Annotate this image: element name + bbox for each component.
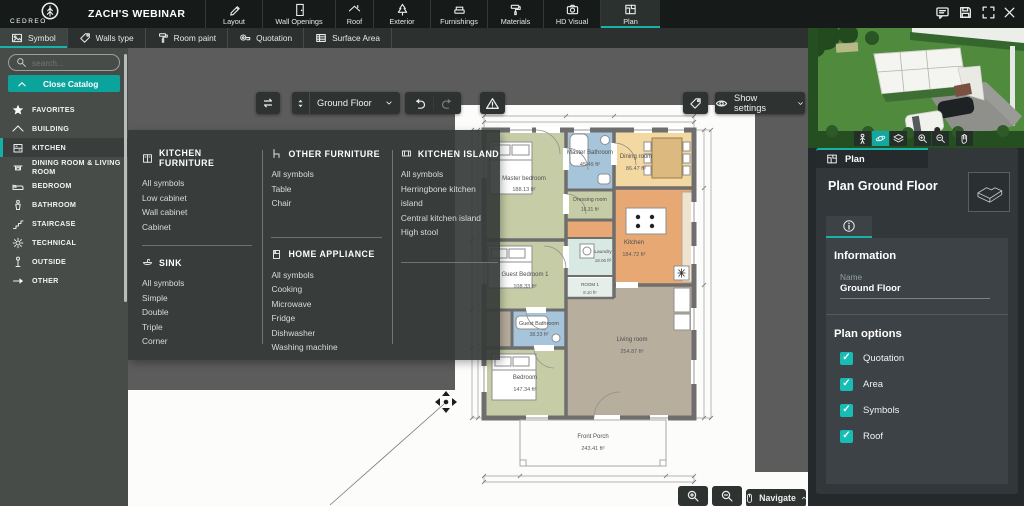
tab-walls-type[interactable]: Walls type <box>68 28 146 48</box>
preview-3d-viewport[interactable] <box>808 28 1024 148</box>
name-label: Name <box>840 272 862 282</box>
catalog-link[interactable]: Triple <box>142 320 254 335</box>
floors-view-button[interactable] <box>890 131 907 146</box>
other-furniture-header[interactable]: OTHER FURNITURE <box>271 148 383 159</box>
show-settings-dropdown[interactable]: Show settings <box>715 92 805 114</box>
tab-roof[interactable]: Roof <box>335 0 373 28</box>
checkbox-checked-icon[interactable] <box>840 430 853 443</box>
orbit-view-button[interactable] <box>872 131 889 146</box>
fullscreen-icon[interactable] <box>981 5 997 21</box>
checkbox-checked-icon[interactable] <box>840 404 853 417</box>
layers-icon <box>893 133 904 144</box>
sync-icon <box>261 96 275 110</box>
sidebar-item-bathroom[interactable]: BATHROOM <box>0 195 128 214</box>
catalog-link[interactable]: Wall cabinet <box>142 205 254 220</box>
catalog-link[interactable]: Double <box>142 305 254 320</box>
zoom-in-icon <box>917 133 928 144</box>
undo-redo-group <box>405 92 461 114</box>
svg-text:Guest Bathroom: Guest Bathroom <box>519 321 559 327</box>
sidebar-item-outside[interactable]: OUTSIDE <box>0 252 128 271</box>
bed-icon <box>12 180 24 192</box>
divider <box>401 262 498 263</box>
option-quotation[interactable]: Quotation <box>840 352 904 365</box>
svg-text:Laundry: Laundry <box>594 249 612 255</box>
preview-zoom-in-button[interactable] <box>914 131 931 146</box>
plan-options-title: Plan options <box>834 328 902 340</box>
chair-icon <box>271 148 282 159</box>
camera-icon <box>566 3 579 16</box>
kitchen-island-header[interactable]: KITCHEN ISLAND <box>401 148 500 159</box>
zoom-in-button[interactable] <box>678 486 708 506</box>
brand-wordmark: CEDREO <box>10 18 47 25</box>
room-1 <box>566 278 614 298</box>
sync-floors-button[interactable] <box>256 92 280 114</box>
labels-button[interactable] <box>683 92 708 114</box>
navigate-dropdown[interactable]: Navigate <box>746 489 806 506</box>
tag-icon <box>79 32 91 44</box>
sidebar-item-staircase[interactable]: STAIRCASE <box>0 214 128 233</box>
appliance-icon <box>271 249 282 260</box>
search-box[interactable] <box>8 54 120 71</box>
floor-selector[interactable]: Ground Floor <box>292 92 400 114</box>
tab-hd-visual[interactable]: HD Visual <box>543 0 600 28</box>
right-panel: Plan Plan Ground Floor Information Name … <box>808 28 1024 506</box>
catalog-link[interactable]: All symbols <box>271 167 383 182</box>
svg-text:Kitchen: Kitchen <box>624 240 644 246</box>
table-icon <box>315 32 327 44</box>
tab-surface-area[interactable]: Surface Area <box>304 28 392 48</box>
svg-text:254.87 ft²: 254.87 ft² <box>620 349 643 355</box>
sidebar-item-other[interactable]: OTHER <box>0 271 128 290</box>
chevron-up-icon <box>17 80 27 88</box>
sidebar-item-bedroom[interactable]: BEDROOM <box>0 176 128 195</box>
sofa-icon <box>453 3 466 16</box>
catalog-link[interactable]: All symbols <box>142 276 254 291</box>
close-catalog-button[interactable]: Close Catalog <box>8 75 120 92</box>
checkbox-checked-icon[interactable] <box>840 352 853 365</box>
flyout-column-2: OTHER FURNITURE All symbols Table Chair … <box>271 148 383 360</box>
floor-name-field[interactable]: Ground Floor <box>840 283 990 299</box>
svg-text:45.49 ft²: 45.49 ft² <box>580 162 600 168</box>
island-icon <box>401 148 412 159</box>
pan-button[interactable] <box>956 131 973 146</box>
panel-heading: Plan Ground Floor <box>828 179 938 193</box>
close-icon[interactable] <box>1002 5 1018 21</box>
cedreo-logo[interactable]: CEDREO <box>4 1 76 27</box>
zoom-out-icon <box>935 133 946 144</box>
plan-panel-tab[interactable]: Plan <box>816 148 928 168</box>
information-title: Information <box>834 250 896 262</box>
floor-stepper-icon[interactable] <box>292 92 310 114</box>
zoom-out-icon <box>720 489 734 503</box>
render-3d-scene <box>808 28 1024 148</box>
svg-text:243.41 ft²: 243.41 ft² <box>581 446 604 452</box>
catalog-link[interactable]: Cabinet <box>142 220 254 235</box>
hand-icon <box>959 133 970 144</box>
sink-header[interactable]: SINK <box>142 257 254 268</box>
comment-icon[interactable] <box>935 5 951 21</box>
tree-icon <box>396 3 409 16</box>
sidebar-item-technical[interactable]: TECHNICAL <box>0 233 128 252</box>
floor-value: Ground Floor <box>310 98 384 108</box>
pencil-icon <box>228 3 241 16</box>
catalog-link[interactable]: Chair <box>271 196 383 211</box>
info-tab[interactable] <box>826 216 872 238</box>
catalog-link[interactable]: High stool <box>401 225 500 240</box>
image-icon <box>11 32 23 44</box>
kitchen-catalog-flyout: KITCHEN FURNITURE All symbols Low cabine… <box>128 130 500 360</box>
search-icon <box>16 57 27 68</box>
info-icon <box>842 219 856 233</box>
eye-icon <box>715 97 728 110</box>
svg-text:Bedroom: Bedroom <box>513 375 537 381</box>
redo-icon[interactable] <box>433 96 460 110</box>
roller-icon <box>157 32 169 44</box>
svg-text:188.13 ft²: 188.13 ft² <box>512 187 535 193</box>
catalog-link[interactable]: Dishwasher <box>271 326 383 341</box>
svg-text:Master bedroom: Master bedroom <box>502 176 546 182</box>
tool-tabs-bar: Symbol Walls type Room paint Quotation S… <box>0 28 808 48</box>
zoom-in-icon <box>686 489 700 503</box>
cedreo-app: { "app": { "brand": "CEDREO", "project_t… <box>0 0 1024 506</box>
tab-symbol[interactable]: Symbol <box>0 28 68 48</box>
kitchen-cabinet-icon <box>12 142 24 154</box>
catalog-link[interactable]: Central kitchen island <box>401 211 500 226</box>
svg-text:18.06 ft²: 18.06 ft² <box>595 258 612 263</box>
building-icon <box>12 123 24 135</box>
kitchen-furniture-header[interactable]: KITCHEN FURNITURE <box>142 148 254 168</box>
roof-icon <box>348 3 361 16</box>
divider <box>392 150 393 344</box>
catalog-sidebar: Close Catalog FAVORITES BUILDING KITCHEN… <box>0 48 128 506</box>
top-bar: CEDREO ZACH'S WEBINAR Layout Wall Openin… <box>0 0 1024 28</box>
blueprint-icon <box>826 153 838 165</box>
plan-info-section: Information Name Ground Floor Plan optio… <box>826 238 1008 484</box>
arrow-icon <box>12 275 24 287</box>
plan-properties-card: Plan Plan Ground Floor Information Name … <box>816 148 1018 494</box>
preview-zoom-out-button[interactable] <box>932 131 949 146</box>
catalog-link[interactable]: Table <box>271 182 383 197</box>
label-tag-icon <box>689 97 702 110</box>
chevron-down-icon <box>384 98 400 108</box>
catalog-link[interactable]: Cooking <box>271 282 383 297</box>
flyout-column-1: KITCHEN FURNITURE All symbols Low cabine… <box>142 148 254 360</box>
measure-icon <box>239 32 251 44</box>
flyout-column-3: KITCHEN ISLAND All symbols Herringbone k… <box>401 148 500 360</box>
svg-text:Front Porch: Front Porch <box>577 434 608 440</box>
stairs-icon <box>12 218 24 230</box>
sidebar-item-kitchen[interactable]: KITCHEN <box>0 138 128 157</box>
blueprint-icon <box>624 3 637 16</box>
svg-text:86.47 ft²: 86.47 ft² <box>626 166 646 172</box>
catalog-link[interactable]: Fridge <box>271 311 383 326</box>
walkthrough-button[interactable] <box>854 131 871 146</box>
sidebar-item-dining-living[interactable]: DINING ROOM & LIVING ROOM <box>0 157 128 176</box>
star-icon <box>12 104 24 116</box>
catalog-link[interactable]: Herringbone kitchen island <box>401 182 500 211</box>
option-roof[interactable]: Roof <box>840 430 883 443</box>
divider <box>262 150 263 344</box>
chevron-down-icon <box>796 99 805 108</box>
chevron-up-icon <box>800 494 808 502</box>
divider <box>826 314 1008 315</box>
svg-text:147.34 ft²: 147.34 ft² <box>513 387 536 393</box>
lamp-icon <box>12 256 24 268</box>
room-dressing <box>566 190 614 220</box>
option-area[interactable]: Area <box>840 378 883 391</box>
tab-layout[interactable]: Layout <box>205 0 262 28</box>
warning-button[interactable] <box>480 92 505 114</box>
catalog-link[interactable]: Simple <box>142 291 254 306</box>
catalog-link[interactable]: All symbols <box>271 268 383 283</box>
catalog-link[interactable]: Washing machine <box>271 340 383 355</box>
svg-text:184.72 ft²: 184.72 ft² <box>622 252 645 258</box>
catalog-link[interactable]: Microwave <box>271 297 383 312</box>
tab-furnishings[interactable]: Furnishings <box>430 0 487 28</box>
option-symbols[interactable]: Symbols <box>840 404 899 417</box>
cabinet-icon <box>142 153 153 164</box>
tab-room-paint[interactable]: Room paint <box>146 28 228 48</box>
search-input[interactable] <box>32 58 114 68</box>
project-title: ZACH'S WEBINAR <box>88 8 185 20</box>
mouse-icon <box>744 493 755 504</box>
sidebar-scrollbar[interactable] <box>124 54 127 302</box>
catalog-link[interactable]: Low cabinet <box>142 191 254 206</box>
svg-text:Dressing room: Dressing room <box>573 197 607 203</box>
floor-3d-icon[interactable] <box>968 172 1010 212</box>
tab-exterior[interactable]: Exterior <box>373 0 430 28</box>
divider <box>271 237 381 238</box>
svg-text:Guest Bedroom 1: Guest Bedroom 1 <box>501 272 549 278</box>
tab-materials[interactable]: Materials <box>487 0 543 28</box>
gear-icon <box>12 237 24 249</box>
preview-toolbar <box>854 131 973 146</box>
plan-canvas[interactable]: Master bedroom 188.13 ft² Master Bathroo… <box>128 48 808 506</box>
warning-icon <box>485 96 500 111</box>
svg-text:Living room: Living room <box>616 337 647 343</box>
catalog-link[interactable]: All symbols <box>142 176 254 191</box>
person-icon <box>857 133 868 144</box>
paint-roller-icon <box>509 3 522 16</box>
tab-quotation[interactable]: Quotation <box>228 28 304 48</box>
svg-text:8.10 ft²: 8.10 ft² <box>583 290 597 295</box>
divider <box>142 245 252 246</box>
tab-wall-openings[interactable]: Wall Openings <box>262 0 335 28</box>
svg-text:38.33 ft²: 38.33 ft² <box>529 332 548 338</box>
orbit-icon <box>875 133 886 144</box>
sink-icon <box>142 257 153 268</box>
sidebar-item-favorites[interactable]: FAVORITES <box>0 100 128 119</box>
zoom-out-button[interactable] <box>712 486 742 506</box>
catalog-link[interactable]: All symbols <box>401 167 500 182</box>
sidebar-item-building[interactable]: BUILDING <box>0 119 128 138</box>
save-icon[interactable] <box>958 5 974 21</box>
dining-table-icon <box>12 161 24 173</box>
undo-icon[interactable] <box>406 96 433 110</box>
checkbox-checked-icon[interactable] <box>840 378 853 391</box>
svg-text:Master Bathroom: Master Bathroom <box>567 150 613 156</box>
door-icon <box>293 3 306 16</box>
washbasin-icon <box>12 199 24 211</box>
catalog-link[interactable]: Corner <box>142 334 254 349</box>
svg-text:16.31 ft²: 16.31 ft² <box>581 207 600 213</box>
tab-plan[interactable]: Plan <box>600 0 660 28</box>
svg-text:ROOM 1: ROOM 1 <box>581 282 599 287</box>
svg-text:108.33 ft²: 108.33 ft² <box>513 284 536 290</box>
home-appliance-header[interactable]: HOME APPLIANCE <box>271 249 383 260</box>
svg-text:Dining room: Dining room <box>620 154 652 160</box>
